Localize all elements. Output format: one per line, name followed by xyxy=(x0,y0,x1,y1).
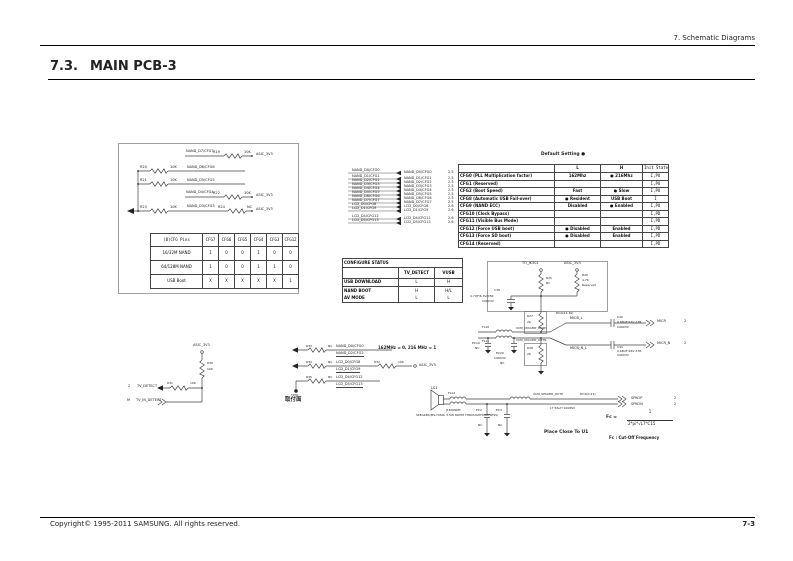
table-cell: I,PD xyxy=(643,218,669,226)
sheet-ref: 2 xyxy=(674,397,676,401)
table-header: VUSB xyxy=(435,268,463,279)
ref-designator: EC19 xyxy=(472,342,480,345)
ground-icon xyxy=(538,371,544,375)
table-row: 16/32M NAND100100 xyxy=(151,247,299,261)
package-label: C0603V xyxy=(617,354,629,357)
value-label: 4.7UF/6.3V/X5R xyxy=(470,295,494,298)
table-cell: 162Mhz xyxy=(555,173,601,181)
sheet-ref: M xyxy=(127,399,130,403)
net-label: LCD_D1/CFG9 xyxy=(352,207,376,211)
ref-designator: R23 xyxy=(140,206,147,210)
table-cell: 0 xyxy=(283,261,299,275)
table-cell: CFG14 (Reserved) xyxy=(459,240,555,248)
table-header: CFG7 xyxy=(203,234,219,247)
table-cell: AV MODE xyxy=(343,295,399,303)
table-cell: I,PD xyxy=(643,225,669,233)
table-cell: CFG12 (Force USB boot) xyxy=(459,225,555,233)
net-label: VCM_SPKAMP_OUTP xyxy=(533,393,563,396)
ref-designator: R20 xyxy=(140,166,147,170)
table-cell: USB Boot xyxy=(151,275,203,289)
sheet-ref: 2 xyxy=(684,320,686,324)
signal-arrow-icons xyxy=(396,171,401,225)
schematic-page: 7. Schematic Diagrams 7.3. MAIN PCB-3 Co… xyxy=(0,0,793,561)
value-label: 10K xyxy=(207,368,213,371)
table-header: H xyxy=(601,165,643,173)
table-cell xyxy=(555,210,601,218)
ref-designator: R30 xyxy=(207,362,213,365)
net-label: LCD_D5/CFG13 xyxy=(352,219,379,223)
ref-designator: R25 xyxy=(546,277,552,280)
table-cell: Fast xyxy=(555,188,601,196)
table-cell: 0 xyxy=(219,261,235,275)
table-header: CFG12 xyxy=(283,234,299,247)
ref-designator: R19 xyxy=(213,151,220,155)
table-cell: H xyxy=(399,287,435,295)
table-row: CFG13 (Force SD boot)● DisabledEnabledI,… xyxy=(459,233,669,241)
micbias-dots-grounds xyxy=(485,295,544,374)
ref-designator: R24 xyxy=(218,206,225,210)
table-cell: 16/32M NAND xyxy=(151,247,203,261)
value-label: NC xyxy=(475,347,479,350)
table-cell: H xyxy=(435,279,463,287)
offpage-label: LCD_D1/CFG9 xyxy=(404,209,428,213)
net-label: NAND_D5/CFG5 xyxy=(187,179,215,183)
table-cell: 1 xyxy=(251,261,267,275)
net-label: VCM_MICAMP_OUTN xyxy=(516,339,546,342)
net-label: LCD_D0/CFG8 xyxy=(336,361,360,365)
table-header: TV_DETECT xyxy=(399,268,435,279)
table-cell: ● Disabled xyxy=(555,233,601,241)
table-cell: 0 xyxy=(267,247,283,261)
table-cell: CFG8 (Automatic USB Fail-over) xyxy=(459,195,555,203)
net-label: NAND_D6/CFG6 xyxy=(187,166,215,170)
sheet-ref: 2 xyxy=(674,403,676,407)
ref-designator: R33 xyxy=(306,345,312,348)
value-label: 0.68UF/16V X7R xyxy=(617,321,641,324)
default-setting-table: L H Init State CFG0 (PLL Multiplication … xyxy=(458,164,669,248)
offpage-label: NAND_D0/CFG0 xyxy=(404,171,432,175)
package-label: C0603V xyxy=(494,357,506,360)
note-label: Reserved xyxy=(582,284,596,287)
ground-icon xyxy=(484,433,490,437)
value-label: 10K xyxy=(170,166,177,170)
table-cell: CFG9 (NAND ECC) xyxy=(459,203,555,211)
formula-label: Fc = xyxy=(606,416,617,421)
table-cell: I,PD xyxy=(643,233,669,241)
offpage-label: MICR xyxy=(657,320,666,324)
sheet-ref: 2 xyxy=(128,385,130,389)
table-cell: USB Boot xyxy=(601,195,643,203)
sheet-ref: 2.6 xyxy=(448,221,454,225)
net-label: MICB_L xyxy=(570,317,583,321)
table-cell: 1 xyxy=(267,261,283,275)
table-header: CFG4 xyxy=(251,234,267,247)
trace-note: 8mil(14.30) xyxy=(556,312,573,315)
table-cell: I xyxy=(643,195,669,203)
package-label: C0603V xyxy=(482,300,494,303)
ref-designator: R27 xyxy=(527,315,533,318)
testpoint-note: 取付面 xyxy=(285,398,302,404)
table-cell: I,PU xyxy=(643,180,669,188)
table-cell: Enabled xyxy=(601,225,643,233)
ref-designator: J1800SMT xyxy=(446,409,461,412)
table-cell: I,PU xyxy=(643,173,669,181)
ref-designator: R28 xyxy=(527,347,533,350)
table-cell: CFG11 (Visible Bus Mode) xyxy=(459,218,555,226)
placement-note: Place Close To U1 xyxy=(544,431,588,436)
table-row: USB DOWNLOAD L H xyxy=(343,279,463,287)
table-cell: NAND BOOT xyxy=(343,287,399,295)
ref-designator: C40 xyxy=(617,316,623,319)
default-setting-caption: Default Setting ● xyxy=(458,153,668,158)
table-row: CFG10 (Clock Bypass)I,PD xyxy=(459,210,669,218)
table-cell: 0 xyxy=(283,247,299,261)
net-arrow-icon xyxy=(157,385,163,391)
table-cell: 0 xyxy=(235,261,251,275)
sheet-ref: 2.6 xyxy=(448,209,454,213)
ref-designator: EC3 xyxy=(496,409,502,412)
junction-dot xyxy=(201,387,203,389)
power-rail-label: ASIC_3V3 xyxy=(564,262,581,266)
value-label: 10K xyxy=(170,206,177,210)
table-header: (B)CFG Pins xyxy=(151,234,203,247)
ground-icon xyxy=(511,350,517,354)
formula-term: 2*pi* xyxy=(628,421,638,426)
value-label: 10K xyxy=(398,361,404,364)
net-label: NAND_D7/CFG7 xyxy=(186,150,214,154)
table-header: Init State xyxy=(643,165,669,173)
table-cell: ● Disabled xyxy=(555,225,601,233)
speaker-icon xyxy=(439,396,444,405)
table-row: CFG9 (NAND ECC)Disabled● EnabledI,PU xyxy=(459,203,669,211)
ref-designator: R22 xyxy=(213,192,220,196)
ref-designator: R26 xyxy=(582,274,588,277)
net-arrow-icon xyxy=(292,363,298,369)
table-cell: L xyxy=(399,295,435,303)
table-cell: I,PU xyxy=(643,188,669,196)
net-label: NAND_D0/CFG0 xyxy=(352,169,380,173)
table-header xyxy=(459,165,555,173)
net-label: LCD_D1/CFG9 xyxy=(336,368,360,373)
value-label: NC xyxy=(247,206,252,210)
value-label: NC xyxy=(328,361,332,364)
table-cell xyxy=(601,210,643,218)
table-cell: X xyxy=(203,275,219,289)
ground-icon xyxy=(485,350,491,354)
net-label: TO_JK301 xyxy=(522,262,539,266)
table-row: CFG1 (Reserved)I,PU xyxy=(459,180,669,188)
table-cell: I,PD xyxy=(643,210,669,218)
table-row: 64/128M NAND100110 xyxy=(151,261,299,275)
cfg-pins-table: (B)CFG Pins CFG7 CFG6 CFG5 CFG4 CFG3 CFG… xyxy=(150,233,299,289)
value-label: NC xyxy=(498,424,502,427)
offpage-label: LCD_D5/CFG13 xyxy=(404,221,431,225)
table-row: CFG0 (PLL Multiplication factor)162Mhz● … xyxy=(459,173,669,181)
net-label: LCD_D4/CFG12 xyxy=(336,376,363,380)
sheet-ref: 2 xyxy=(684,342,686,346)
ground-icon xyxy=(508,307,514,311)
table-cell: ● 216Mhz xyxy=(601,173,643,181)
table-cell: I,PU xyxy=(643,203,669,211)
table-cell: ● Enabled xyxy=(601,203,643,211)
table-cell: ● Slow xyxy=(601,188,643,196)
table-row: CFG12 (Force USB boot)● DisabledEnabledI… xyxy=(459,225,669,233)
trace-note: 8mil(0.23) xyxy=(580,393,596,396)
net-label: NAND_D4/CFG4 xyxy=(186,191,214,195)
value-label: 10K xyxy=(190,382,196,385)
value-label: NC xyxy=(478,424,482,427)
table-cell: CFG1 (Reserved) xyxy=(459,180,555,188)
power-rail-label: ASIC_3V3 xyxy=(256,208,273,212)
net-label: NAND_D3/CFG3 xyxy=(187,205,215,209)
net-label: VCM_MICAMP_OUTP xyxy=(516,327,546,330)
net-label: TV_DETECT xyxy=(137,385,157,389)
power-rail-label: ASIC_3V3 xyxy=(193,344,210,348)
table-cell: CFG13 (Force SD boot) xyxy=(459,233,555,241)
table-row: NAND BOOT H H/L xyxy=(343,287,463,295)
formula-denominator: 2*pi*√L7*C15 xyxy=(628,422,655,426)
ref-designator: R31 xyxy=(167,382,173,385)
ref-designator: EC20 xyxy=(496,352,504,355)
table-row: CFG8 (Automatic USB Fail-over)● Resident… xyxy=(459,195,669,203)
power-rail-label: ASIC_3V3 xyxy=(256,153,273,157)
table-cell: USB DOWNLOAD xyxy=(343,279,399,287)
offpage-label: SPKOP xyxy=(631,397,642,401)
sheet-ref: 2.5 xyxy=(448,171,454,175)
value-label: 10K xyxy=(244,192,251,196)
value-label: 4.7K xyxy=(582,279,589,282)
table-title: CONFIGURE STATUS xyxy=(343,259,463,268)
power-rail-label: ASIC_3V3 xyxy=(256,194,273,198)
value-label: NC xyxy=(546,282,550,285)
table-row: CFG2 (Boot Speed)Fast● SlowI,PU xyxy=(459,188,669,196)
ref-designator: R34 xyxy=(306,361,312,364)
table-cell xyxy=(601,218,643,226)
package-label: C0603V xyxy=(617,326,629,329)
table-header: CFG6 xyxy=(219,234,235,247)
ref-designator: FL10 xyxy=(482,326,489,329)
table-cell: X xyxy=(235,275,251,289)
value-label: NC xyxy=(500,362,504,365)
table-cell: 1 xyxy=(203,261,219,275)
tv-detect-wires xyxy=(158,351,204,405)
ref-designator: FL11 xyxy=(482,340,489,343)
value-label: 10K xyxy=(244,151,251,155)
configure-status-table: CONFIGURE STATUS TV_DETECT VUSB USB DOWN… xyxy=(342,258,463,303)
table-cell xyxy=(601,180,643,188)
table-cell xyxy=(555,218,601,226)
table-cell: Enabled xyxy=(601,233,643,241)
part-description: SPEAKER(MS-Y050L 3.5W 8OHM THROUGHHOLE/S… xyxy=(416,414,498,417)
value-label: 2K xyxy=(527,353,531,356)
table-cell: 0 xyxy=(235,247,251,261)
ref-designator: LS1 xyxy=(431,387,437,391)
table-cell: L xyxy=(435,295,463,303)
offpage-label: MICR_N xyxy=(657,342,670,346)
net-arrow-icon xyxy=(292,347,298,353)
value-label: 10K xyxy=(170,179,177,183)
ground-arrow-icon xyxy=(127,208,134,214)
value-label: 2K xyxy=(527,321,531,324)
table-cell: 0 xyxy=(219,247,235,261)
ground-icon xyxy=(504,433,510,437)
table-header: L xyxy=(555,165,601,173)
table-header xyxy=(343,268,399,279)
table-header: CFG3 xyxy=(267,234,283,247)
ref-designator: C38 xyxy=(494,289,500,292)
table-header: CFG5 xyxy=(235,234,251,247)
table-cell: Disabled xyxy=(555,203,601,211)
power-rail-label: ASIC_3V3 xyxy=(419,364,436,368)
ref-designator: EC2 xyxy=(476,409,482,412)
table-row: USB BootXXXXX1 xyxy=(151,275,299,289)
table-cell: H/L xyxy=(435,287,463,295)
net-label: NAND_D0/CFG0 xyxy=(336,345,364,349)
table-cell: L xyxy=(399,279,435,287)
ref-designator: R32 xyxy=(374,361,380,364)
value-label: L7 56uH 1008SV xyxy=(550,407,575,410)
value-label: NC xyxy=(328,376,332,379)
table-cell: 1 xyxy=(251,247,267,261)
table-cell: CFG2 (Boot Speed) xyxy=(459,188,555,196)
table-cell: 64/128M NAND xyxy=(151,261,203,275)
config-note: 162MHz = 0, 216 MHz = 1 xyxy=(378,346,436,350)
table-cell: CFG10 (Clock Bypass) xyxy=(459,210,555,218)
ref-designator: FL12 xyxy=(448,392,455,395)
net-label: LCD_D5/CFG13 xyxy=(336,383,363,388)
offpage-label: SPKON xyxy=(631,403,643,407)
table-cell: 1 xyxy=(283,275,299,289)
table-cell: 1 xyxy=(203,247,219,261)
table-cell: ● Resident xyxy=(555,195,601,203)
table-cell: X xyxy=(267,275,283,289)
table-cell: I,PD xyxy=(643,240,669,248)
ref-designator: R21 xyxy=(140,179,147,183)
table-row: CFG11 (Visible Bus Mode)I,PD xyxy=(459,218,669,226)
net-label: MICB_N_L xyxy=(570,347,587,351)
formula-numerator: 1 xyxy=(628,410,672,414)
ref-designator: R35 xyxy=(306,376,312,379)
table-cell: X xyxy=(251,275,267,289)
formula-note: Fc : Cut-Off Frequency xyxy=(609,436,659,440)
strap-arrows xyxy=(292,347,298,393)
net-label: NAND_D2/CFG2 xyxy=(336,352,364,357)
value-label: NC xyxy=(328,345,332,348)
table-row: CFG14 (Reserved)I,PD xyxy=(459,240,669,248)
table-cell: X xyxy=(219,275,235,289)
table-cell xyxy=(601,240,643,248)
net-label: TV_IN_DETECT xyxy=(136,399,162,403)
table-cell xyxy=(555,240,601,248)
formula-sqrt-term: √L7*C15 xyxy=(638,420,655,426)
table-cell xyxy=(555,180,601,188)
table-cell: CFG0 (PLL Multiplication factor) xyxy=(459,173,555,181)
table-row: AV MODE L L xyxy=(343,295,463,303)
